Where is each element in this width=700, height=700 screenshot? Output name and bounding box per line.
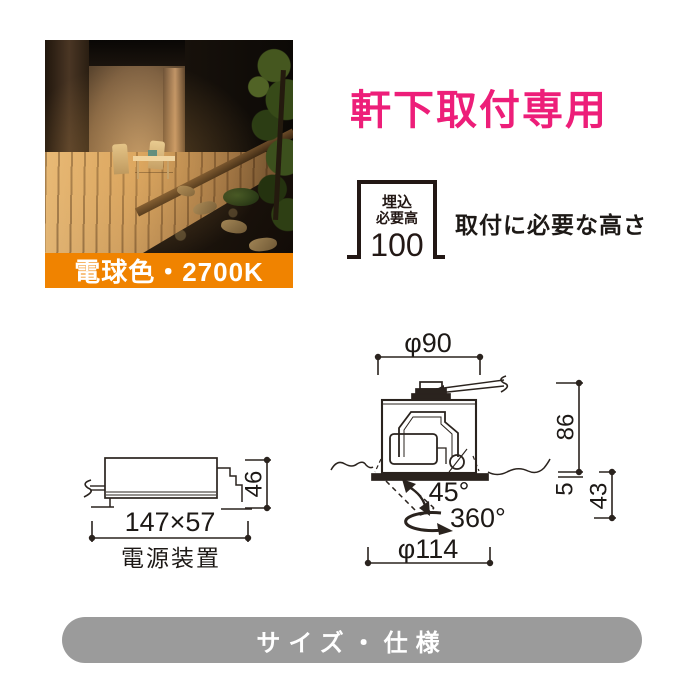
power-unit-size-value: 147×57 <box>125 507 216 537</box>
rotation-value: 360° <box>450 503 506 533</box>
fixture-right-dimensions: 86 5 43 <box>552 380 617 520</box>
section-header-size-spec: サイズ・仕様 <box>62 617 642 663</box>
power-unit-height-value: 46 <box>241 471 268 498</box>
fixture-tilt-indicator: 45° 360° <box>386 477 506 535</box>
fixture-body-drawing <box>331 376 550 480</box>
fixture-housing <box>382 400 476 473</box>
dimension-drawings: 147×57 電源装置 46 φ90 <box>0 0 700 700</box>
fixture-bottom-diameter-value: φ114 <box>398 534 459 564</box>
rotation-arrow <box>406 513 442 531</box>
ceiling-line-right <box>488 459 550 475</box>
fixture-bottom-diameter-dimension: φ114 <box>365 534 492 566</box>
power-unit-size-dimension: 147×57 <box>89 507 250 542</box>
protrusion-value: 43 <box>586 483 613 510</box>
section-header-label: サイズ・仕様 <box>256 623 447 658</box>
flange-thickness-value: 5 <box>552 482 579 495</box>
wire-break-symbol <box>501 376 507 392</box>
fixture-top-diameter-value: φ90 <box>404 328 452 358</box>
power-unit-label: 電源装置 <box>121 545 221 571</box>
power-unit-height-dimension: 46 <box>241 457 272 510</box>
ceiling-line-left <box>331 462 373 470</box>
power-unit-drawing <box>84 458 252 509</box>
wire-break-symbol <box>84 480 91 497</box>
fixture-lamp-body <box>390 434 437 464</box>
spec-sheet-page: 電球色・2700K 軒下取付専用 埋込 必要高 100 取付に必要な高さ <box>0 0 700 700</box>
fixture-top-diameter-dimension: φ90 <box>375 328 482 375</box>
power-unit-left-foot <box>91 498 114 507</box>
embed-height-value: 86 <box>553 414 580 441</box>
